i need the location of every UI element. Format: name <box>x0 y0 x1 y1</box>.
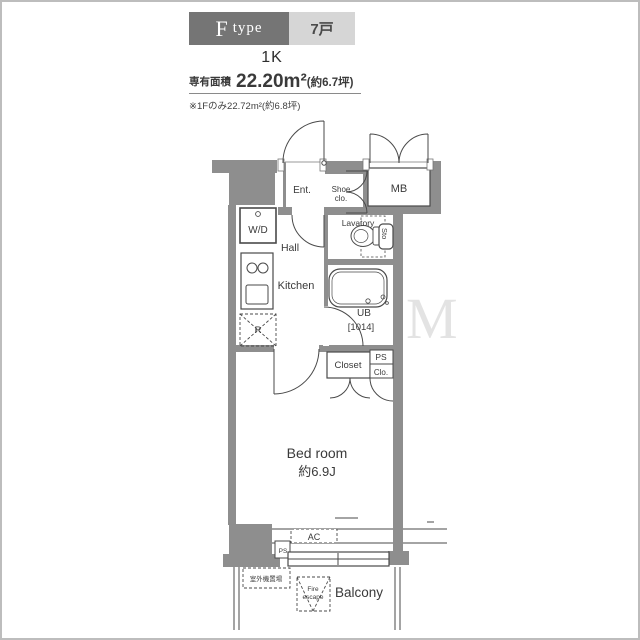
label-hall: Hall <box>281 242 299 254</box>
bedroom-door <box>274 349 319 394</box>
svg-text:escape: escape <box>303 594 324 601</box>
label-meter-box: MB <box>391 183 408 195</box>
plan-type: 1K <box>189 49 355 67</box>
label-bedroom: Bed room <box>287 445 348 461</box>
type-badge: F type <box>189 12 289 45</box>
toilet-bowl <box>351 226 375 247</box>
floorplan-drawing: M <box>2 2 638 638</box>
label-closet: Closet <box>335 360 362 371</box>
wall-above-shoe-closet <box>325 161 363 174</box>
type-word: type <box>233 20 263 37</box>
label-lavatory: Lavatory <box>342 218 375 228</box>
label-ac: AC <box>308 532 321 542</box>
wall-lavatory-south <box>324 259 403 265</box>
door-post <box>363 159 369 170</box>
entrance-door <box>283 121 324 163</box>
clo-door <box>370 378 393 401</box>
wall-east-foot <box>388 551 409 565</box>
area-row: 専有面積 22.20m² (約6.7坪) <box>189 68 361 94</box>
kitchen-sink <box>246 285 268 304</box>
type-letter: F <box>215 16 227 42</box>
wall-top-left-bar <box>212 160 277 173</box>
area-value: 22.20m² <box>236 72 307 91</box>
label-kitchen: Kitchen <box>278 280 315 292</box>
wall-east <box>393 214 403 559</box>
label-bedroom-size: 約6.9J <box>298 464 336 479</box>
washer-dryer-knob <box>256 212 261 217</box>
label-pipe-space-bottom: PS <box>279 548 288 555</box>
label-pipe-space: PS <box>375 352 387 362</box>
wall-southwest-foot <box>223 554 280 567</box>
label-outdoor-unit: 室外機置場 <box>250 574 283 583</box>
area-note: ※1Fのみ22.72m²(約6.8坪) <box>189 98 300 112</box>
bathtub <box>329 269 387 307</box>
wall-kitchen-south-post <box>319 345 324 352</box>
label-balcony: Balcony <box>335 585 383 600</box>
label-shoe-closet: Shoe <box>332 185 351 194</box>
svg-text:clo.: clo. <box>335 194 347 203</box>
closet-doors <box>330 378 370 398</box>
label-refrigerator: R <box>255 325 262 336</box>
label-entrance: Ent. <box>293 185 311 196</box>
area-label: 専有面積 <box>189 74 231 91</box>
mb-door-left <box>370 134 399 163</box>
label-unit-bath: UB <box>357 308 371 319</box>
mb-door-right <box>399 134 428 163</box>
area-tsubo: (約6.7坪) <box>307 74 354 91</box>
watermark-letter: M <box>406 286 458 351</box>
label-clo: Clo. <box>374 368 388 377</box>
burner <box>258 263 268 273</box>
label-fire-escape: Fire <box>307 586 319 593</box>
label-storage: Sto <box>380 228 389 239</box>
wall-southwest-block <box>229 524 272 558</box>
wall-west <box>228 205 236 525</box>
wall-top-left-block <box>229 172 275 205</box>
burner <box>247 263 257 273</box>
floorplan-page: M <box>0 0 640 640</box>
label-washer-dryer: W/D <box>248 225 267 236</box>
label-unit-bath-size: [1014] <box>348 322 374 333</box>
unit-count-badge: 7戸 <box>289 12 355 45</box>
